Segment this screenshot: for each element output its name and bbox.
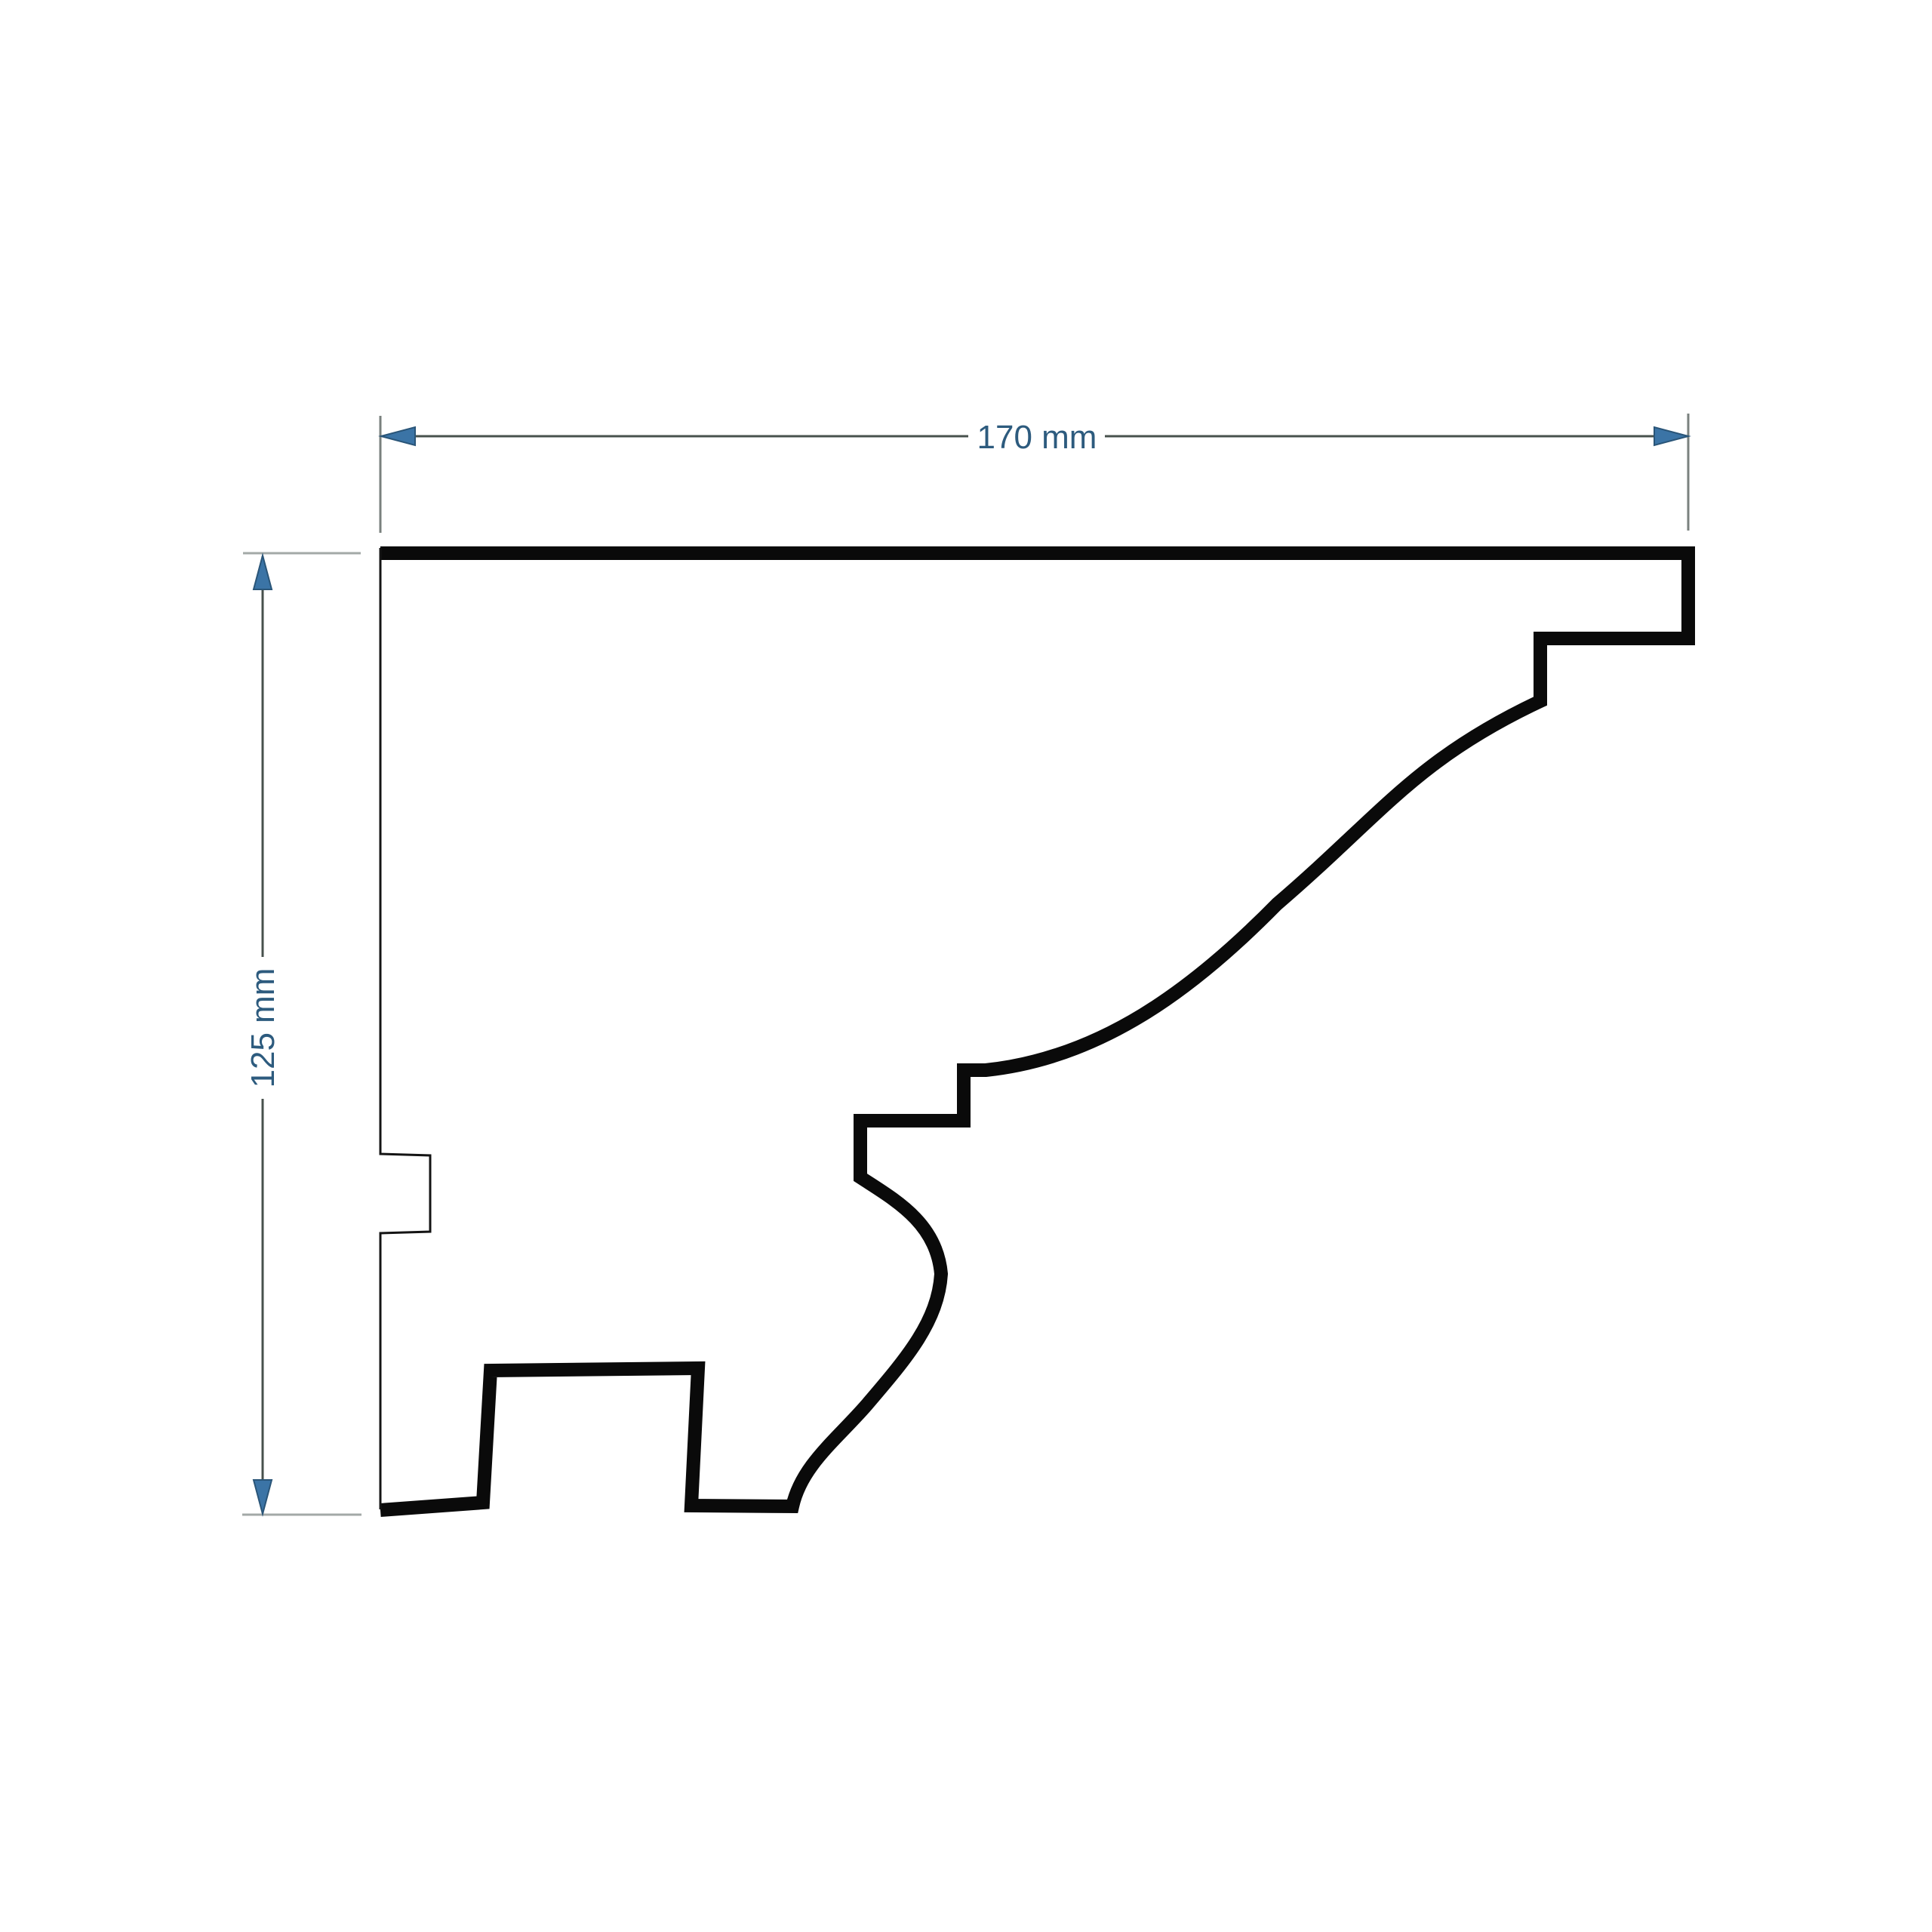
svg-text:170 mm: 170 mm [977, 419, 1097, 456]
svg-text:125 mm: 125 mm [245, 968, 281, 1088]
